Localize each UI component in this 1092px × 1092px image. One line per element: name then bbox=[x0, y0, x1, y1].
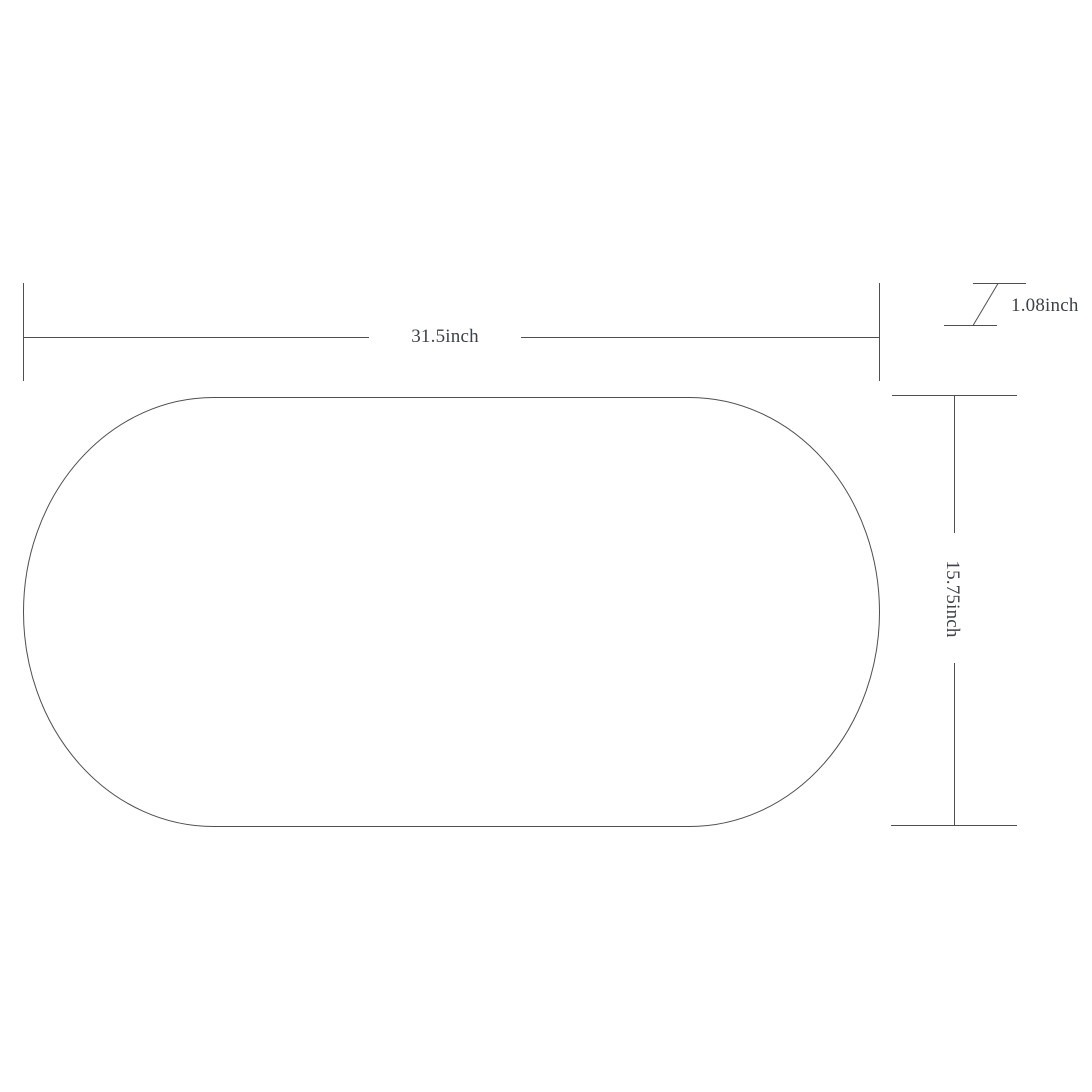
height-dimension-label: 15.75inch bbox=[941, 560, 963, 637]
dimension-drawing bbox=[0, 0, 1092, 1092]
dimension-diagram-canvas: 31.5inch 1.08inch 15.75inch bbox=[0, 0, 1092, 1092]
width-dimension-label: 31.5inch bbox=[411, 326, 479, 348]
thickness-diagonal-line bbox=[973, 284, 998, 326]
tabletop-outline-shape bbox=[24, 398, 880, 827]
thickness-dimension-label: 1.08inch bbox=[1011, 295, 1079, 317]
